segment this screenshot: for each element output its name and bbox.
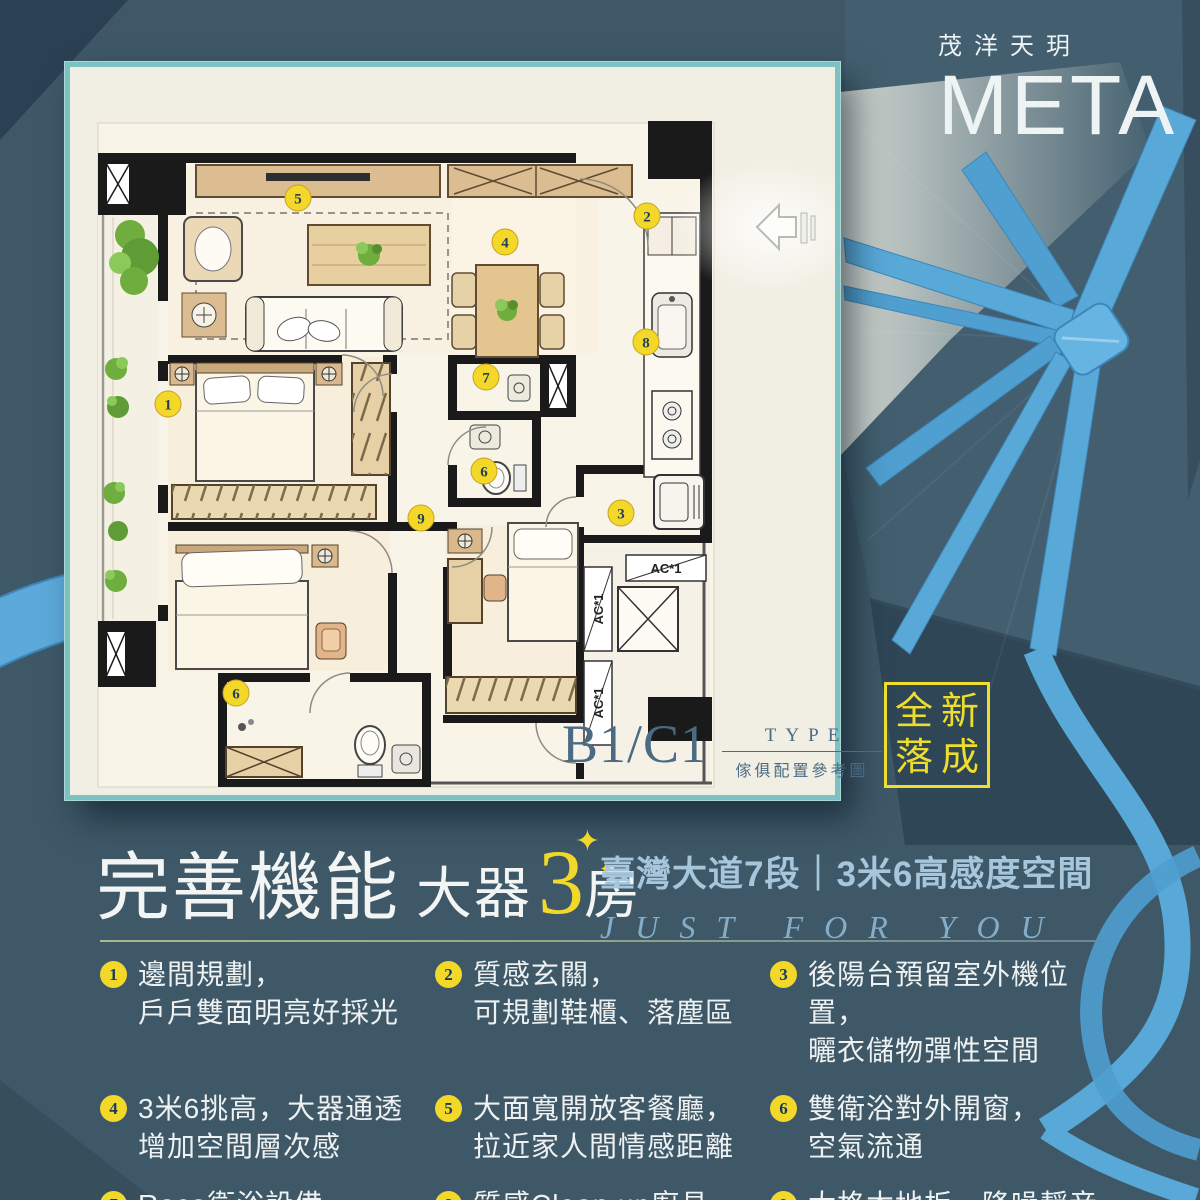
- feature-number-badge: 2: [435, 961, 462, 988]
- feature-item: 7 Roca衛浴設備: [100, 1186, 435, 1200]
- feature-line: 拉近家人間情感距離: [473, 1128, 734, 1166]
- feature-line: 雙衛浴對外開窗，: [808, 1090, 1040, 1128]
- brand-name-zh: 茂洋天玥: [938, 26, 1177, 61]
- feature-item: 6 雙衛浴對外開窗，空氣流通: [770, 1090, 1110, 1166]
- plan-marker-number: 6: [480, 465, 488, 481]
- feature-number-badge: 3: [770, 961, 797, 988]
- plan-marker-number: 8: [642, 336, 650, 352]
- feature-number-badge: 7: [100, 1191, 127, 1200]
- plan-type-word: TYPE: [722, 725, 882, 752]
- plan-type-code: B1/C1: [562, 715, 708, 773]
- feature-line: 後陽台預留室外機位置，: [808, 956, 1110, 1032]
- feature-item: 2 質感玄關，可規劃鞋櫃、落塵區: [435, 956, 770, 1070]
- badge-line: 落成: [887, 735, 987, 781]
- plan-type-label: B1/C1 TYPE 傢俱配置參考圖: [562, 715, 882, 781]
- subtitle-location: 臺灣大道7段｜3米6高感度空間: [600, 846, 1093, 897]
- feature-number-badge: 5: [435, 1095, 462, 1122]
- plan-marker-number: 4: [501, 236, 509, 252]
- badge-line: 全新: [887, 689, 987, 735]
- brand-name-en: META: [938, 63, 1177, 147]
- plan-marker-number: 2: [643, 210, 651, 226]
- feature-line: 大面寬開放客餐廳，: [473, 1090, 734, 1128]
- plan-marker-number: 7: [482, 371, 490, 387]
- brand-logo: 茂洋天玥 META: [938, 26, 1177, 147]
- feature-item: 5 大面寬開放客餐廳，拉近家人間情感距離: [435, 1090, 770, 1166]
- feature-item: 4 3米6挑高，大器通透增加空間層次感: [100, 1090, 435, 1166]
- bedroom1-furniture: [170, 363, 390, 481]
- feature-number-badge: 4: [100, 1095, 127, 1122]
- plan-marker-number: 3: [617, 507, 625, 523]
- headline-lead: 完善機能: [96, 828, 400, 935]
- feature-line: 增加空間層次感: [138, 1128, 403, 1166]
- ac-label: AC*1: [650, 561, 681, 576]
- floor-plan: AC*1 AC*1 AC*1: [70, 67, 835, 795]
- feature-line: 邊間規劃，: [138, 956, 399, 994]
- plan-type-caption: 傢俱配置參考圖: [722, 752, 882, 781]
- feature-line: 3米6挑高，大器通透: [138, 1090, 403, 1128]
- feature-number-badge: 9: [770, 1191, 797, 1200]
- ac-label: AC*1: [591, 593, 606, 624]
- floor-plan-card: AC*1 AC*1 AC*1: [65, 62, 840, 800]
- bedroom3-furniture: [448, 523, 578, 641]
- feature-line: 曬衣儲物彈性空間: [808, 1032, 1110, 1070]
- feature-number-badge: 1: [100, 961, 127, 988]
- feature-line: Roca衛浴設備: [138, 1186, 323, 1200]
- feature-line: 空氣流通: [808, 1128, 1040, 1166]
- sparkle-icon: ✦: [575, 812, 600, 872]
- plan-marker-number: 5: [294, 192, 302, 208]
- feature-item: 3 後陽台預留室外機位置，曬衣儲物彈性空間: [770, 956, 1110, 1070]
- plan-marker-number: 9: [417, 512, 425, 528]
- subtitle: 臺灣大道7段｜3米6高感度空間 JUST FOR YOU: [600, 846, 1093, 946]
- section-divider: [100, 940, 1100, 942]
- headline: 完善機能 大器 3 ✦ ✦ 房: [96, 828, 640, 935]
- feature-line: 戶戶雙面明亮好採光: [138, 994, 399, 1032]
- feature-line: 可規劃鞋櫃、落塵區: [473, 994, 734, 1032]
- plan-marker-number: 6: [232, 687, 240, 703]
- feature-line: 質感Clean up廚具: [473, 1186, 709, 1200]
- headline-mid: 大器: [416, 849, 532, 930]
- new-completion-badge: 全新 落成: [884, 682, 990, 788]
- feature-number-badge: 8: [435, 1191, 462, 1200]
- feature-line: 太格木地板，降噪靜音: [808, 1186, 1098, 1200]
- feature-item: 9 太格木地板，降噪靜音: [770, 1186, 1110, 1200]
- feature-item: 8 質感Clean up廚具: [435, 1186, 770, 1200]
- feature-item: 1 邊間規劃，戶戶雙面明亮好採光: [100, 956, 435, 1070]
- feature-list: 1 邊間規劃，戶戶雙面明亮好採光 2 質感玄關，可規劃鞋櫃、落塵區 3 後陽台預…: [100, 956, 1110, 1200]
- headline-number: 3 ✦ ✦: [538, 852, 584, 912]
- plan-marker-number: 1: [164, 398, 172, 414]
- poster: 茂洋天玥 META 全新 落成: [0, 0, 1200, 1200]
- feature-line: 質感玄關，: [473, 956, 734, 994]
- feature-number-badge: 6: [770, 1095, 797, 1122]
